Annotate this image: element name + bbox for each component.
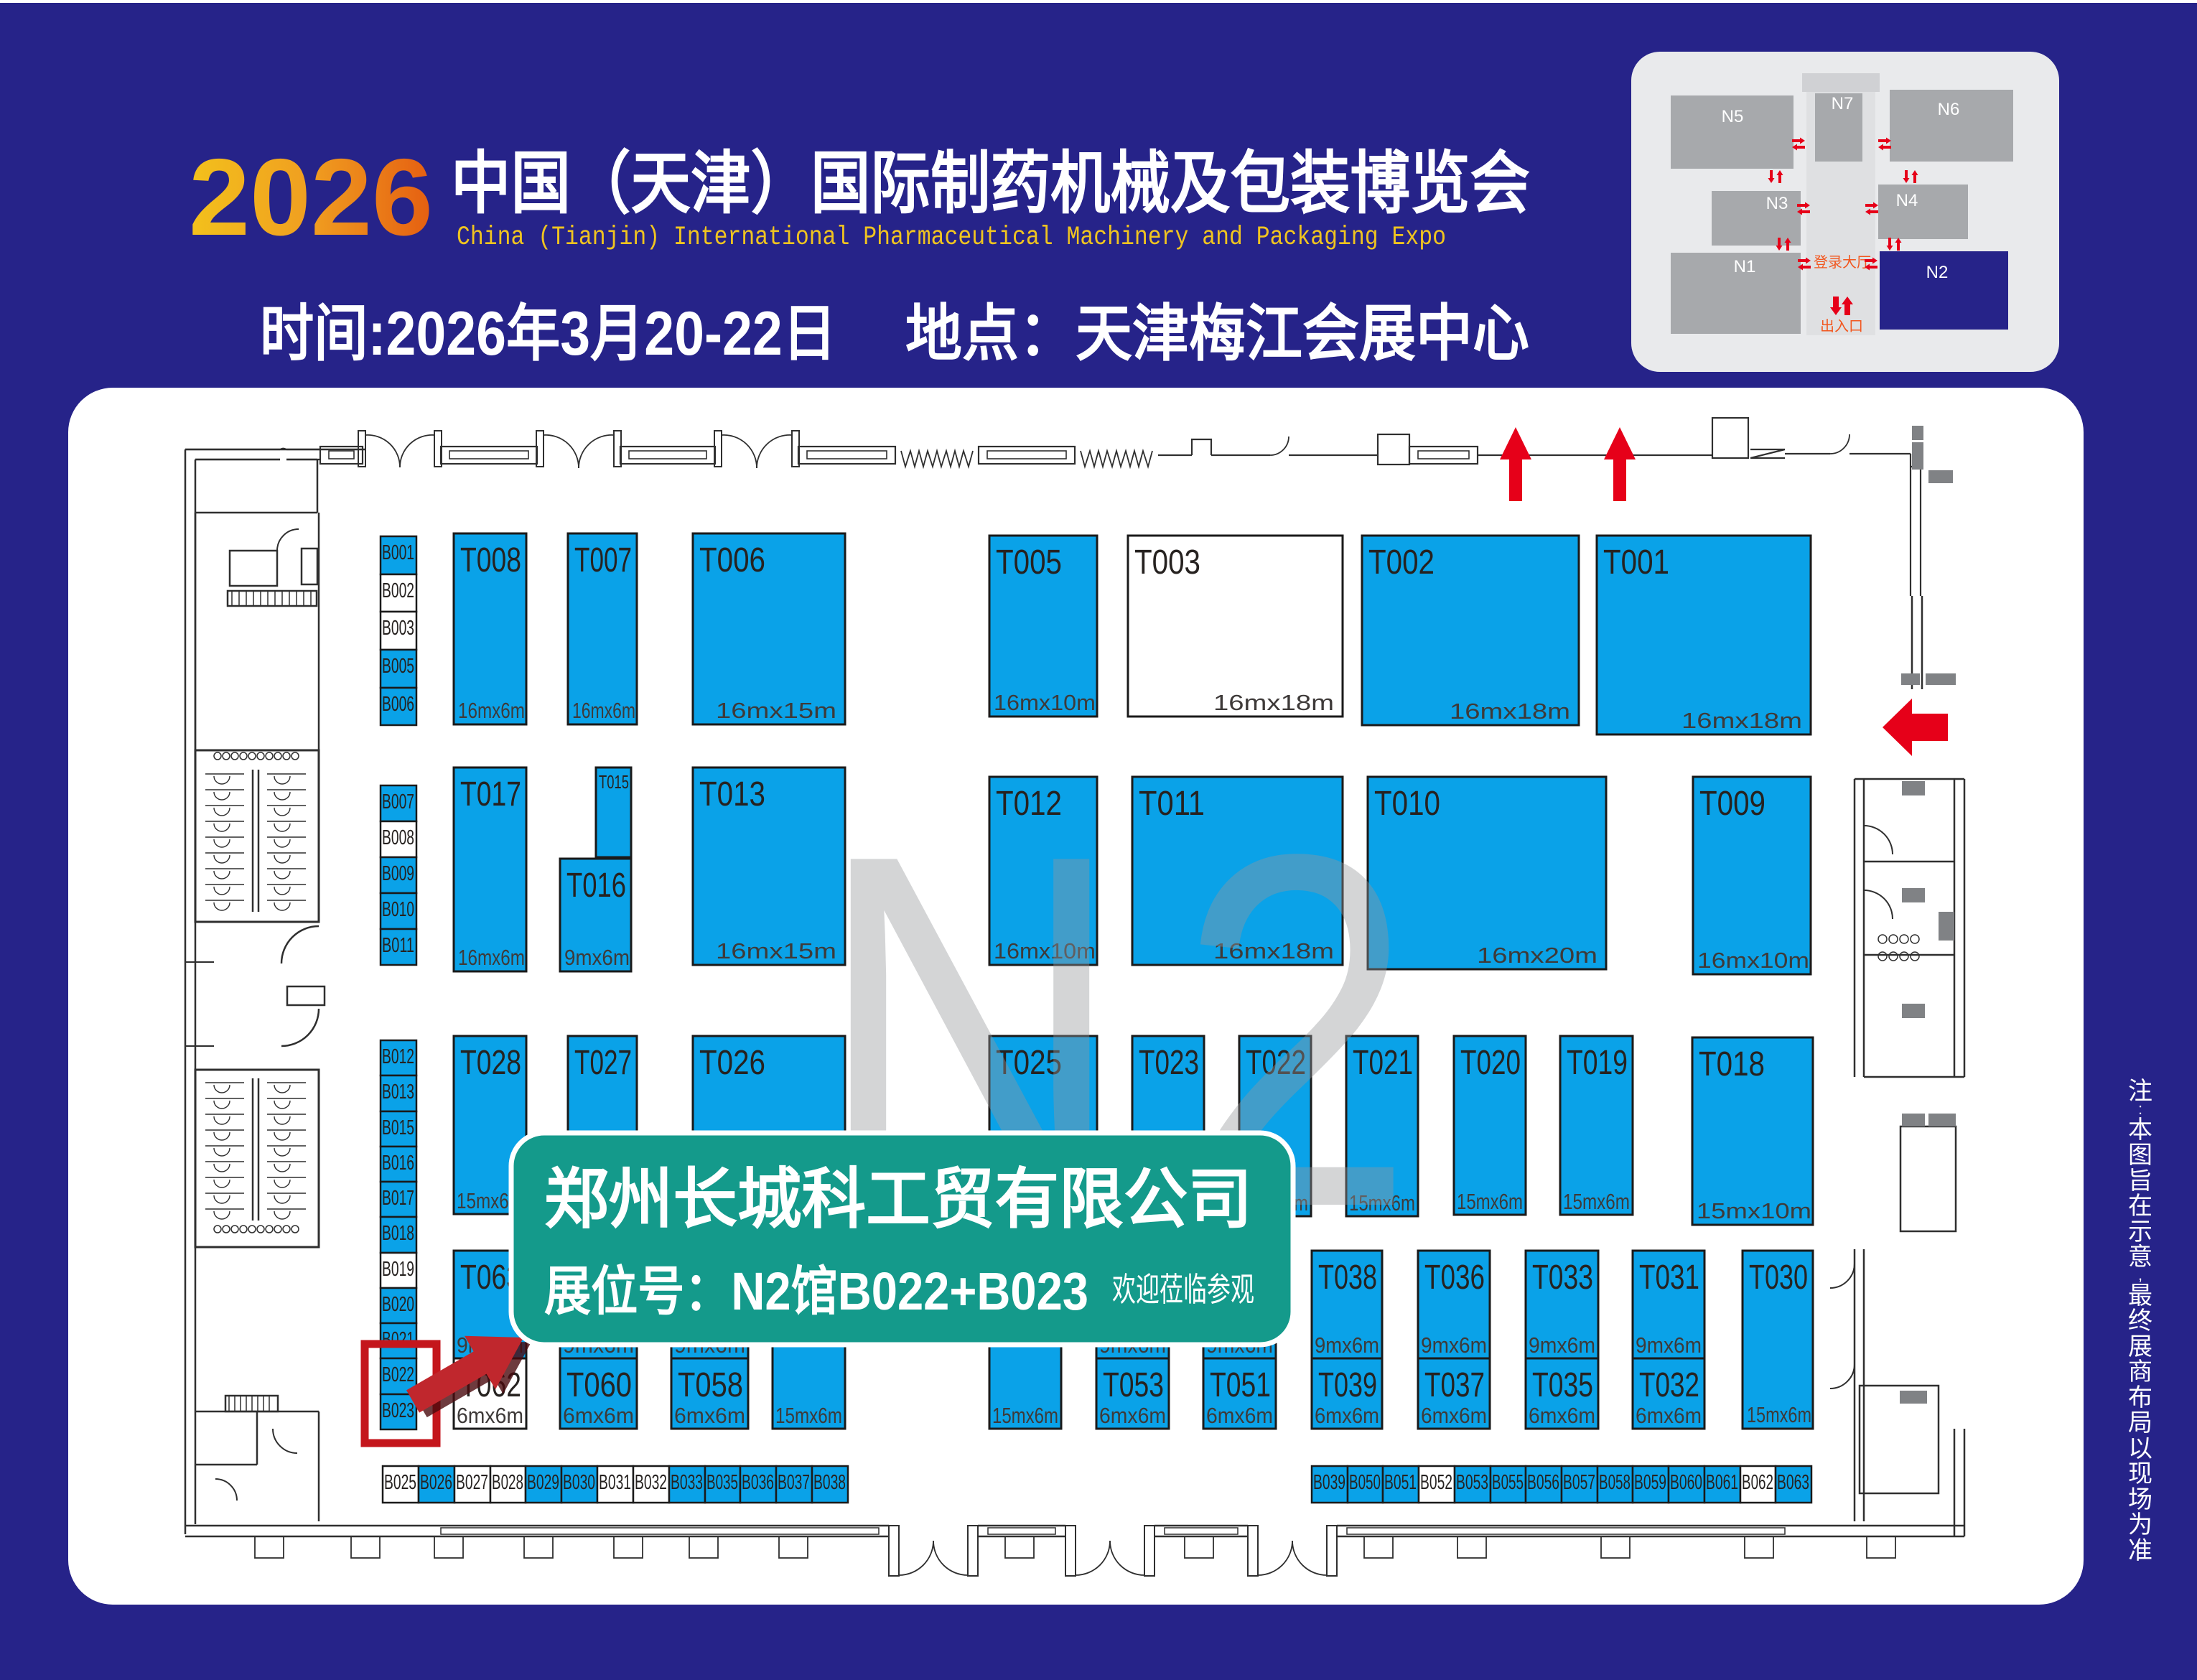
- svg-text:B061: B061: [1706, 1471, 1738, 1494]
- svg-text:N5: N5: [1722, 107, 1744, 126]
- svg-text:9mx6m: 9mx6m: [1315, 1333, 1379, 1358]
- svg-text:T017: T017: [460, 775, 521, 813]
- svg-text:China (Tianjin) International: China (Tianjin) International Pharmaceut…: [457, 223, 1446, 253]
- svg-text:时间:2026年3月20-22日: 时间:2026年3月20-22日: [260, 299, 836, 368]
- svg-text:T053: T053: [1103, 1366, 1164, 1404]
- svg-text:6mx6m: 6mx6m: [674, 1403, 745, 1428]
- svg-text:本: 本: [2128, 1116, 2152, 1144]
- svg-text:T027: T027: [574, 1044, 632, 1082]
- svg-text:B031: B031: [599, 1471, 631, 1494]
- svg-text:16mx18m: 16mx18m: [1681, 708, 1802, 733]
- svg-text:B023: B023: [382, 1399, 414, 1422]
- svg-text:B035: B035: [706, 1471, 738, 1494]
- svg-text:T039: T039: [1318, 1366, 1377, 1404]
- svg-text:登录大厅: 登录大厅: [1814, 254, 1871, 271]
- svg-text:B030: B030: [563, 1471, 595, 1494]
- svg-text:B033: B033: [671, 1471, 703, 1494]
- svg-text:图: 图: [2128, 1142, 2152, 1169]
- svg-text:9mx6m: 9mx6m: [1529, 1333, 1595, 1358]
- svg-text:15mx6m: 15mx6m: [992, 1403, 1058, 1428]
- svg-text:在: 在: [2128, 1193, 2152, 1220]
- svg-text:6mx6m: 6mx6m: [1636, 1403, 1702, 1428]
- svg-text:B008: B008: [382, 826, 414, 849]
- svg-text:B053: B053: [1456, 1471, 1488, 1494]
- svg-text:N7: N7: [1832, 94, 1854, 113]
- svg-text:T051: T051: [1210, 1366, 1271, 1404]
- svg-text:旨: 旨: [2128, 1167, 2152, 1195]
- svg-text:B052: B052: [1420, 1471, 1452, 1494]
- svg-text:9mx6m: 9mx6m: [564, 945, 630, 970]
- svg-text:T006: T006: [699, 541, 765, 579]
- svg-text:B015: B015: [382, 1116, 414, 1139]
- svg-text:6mx6m: 6mx6m: [563, 1403, 634, 1428]
- svg-text:15mx6m: 15mx6m: [775, 1403, 842, 1428]
- svg-text:B058: B058: [1599, 1471, 1631, 1494]
- svg-text:以: 以: [2128, 1435, 2152, 1462]
- svg-text:T035: T035: [1532, 1366, 1593, 1404]
- svg-text:T032: T032: [1639, 1366, 1699, 1404]
- svg-text:15mx10m: 15mx10m: [1697, 1198, 1811, 1223]
- svg-text:中国（天津）国际制药机械及包装博览会: 中国（天津）国际制药机械及包装博览会: [451, 146, 1530, 222]
- svg-text:B013: B013: [382, 1081, 414, 1103]
- svg-text:6mx6m: 6mx6m: [1099, 1403, 1166, 1428]
- svg-text:B059: B059: [1634, 1471, 1666, 1494]
- svg-text:T013: T013: [699, 775, 765, 813]
- svg-text:T015: T015: [599, 771, 629, 793]
- svg-text:B037: B037: [778, 1471, 810, 1494]
- svg-text:,: ,: [2138, 1266, 2142, 1284]
- svg-text:B007: B007: [382, 790, 414, 813]
- svg-text:2026: 2026: [189, 136, 433, 258]
- svg-text:T060: T060: [566, 1366, 632, 1404]
- svg-text:15mx6m: 15mx6m: [1563, 1189, 1630, 1214]
- svg-text:B050: B050: [1349, 1471, 1381, 1494]
- svg-text:展位号：N2馆B022+B023: 展位号：N2馆B022+B023: [544, 1261, 1088, 1321]
- svg-text:B017: B017: [382, 1187, 414, 1210]
- svg-text:9mx6m: 9mx6m: [1421, 1333, 1487, 1358]
- svg-text:6mx6m: 6mx6m: [1315, 1403, 1379, 1428]
- svg-text:6mx6m: 6mx6m: [1529, 1403, 1595, 1428]
- svg-text::: :: [2138, 1100, 2142, 1118]
- svg-text:N6: N6: [1938, 100, 1960, 119]
- svg-text:16mx15m: 16mx15m: [716, 698, 836, 723]
- svg-text:B060: B060: [1670, 1471, 1702, 1494]
- svg-text:B005: B005: [382, 655, 414, 678]
- svg-text:B010: B010: [382, 898, 414, 921]
- svg-text:16mx6m: 16mx6m: [572, 698, 635, 723]
- svg-text:B022: B022: [382, 1363, 414, 1386]
- svg-text:B063: B063: [1777, 1471, 1809, 1494]
- svg-text:场: 场: [2128, 1486, 2152, 1513]
- svg-text:B055: B055: [1492, 1471, 1524, 1494]
- svg-text:商: 商: [2128, 1358, 2152, 1386]
- svg-text:最: 最: [2128, 1282, 2152, 1310]
- svg-text:16mx18m: 16mx18m: [1450, 699, 1570, 724]
- svg-text:T033: T033: [1532, 1259, 1593, 1297]
- svg-text:T002: T002: [1368, 543, 1435, 582]
- svg-text:地点：天津梅江会展中心: 地点：天津梅江会展中心: [905, 299, 1529, 368]
- svg-text:B011: B011: [382, 934, 414, 957]
- svg-text:欢迎莅临参观: 欢迎莅临参观: [1112, 1271, 1254, 1308]
- svg-text:T058: T058: [678, 1366, 743, 1404]
- svg-text:16mx20m: 16mx20m: [1477, 943, 1597, 968]
- svg-text:B025: B025: [384, 1471, 416, 1494]
- svg-text:B026: B026: [420, 1471, 452, 1494]
- svg-text:B062: B062: [1742, 1471, 1773, 1494]
- svg-text:B056: B056: [1527, 1471, 1559, 1494]
- svg-text:16mx18m: 16mx18m: [1213, 690, 1334, 715]
- svg-text:16mx10m: 16mx10m: [994, 690, 1096, 715]
- svg-text:出入口: 出入口: [1820, 318, 1863, 335]
- svg-text:16mx10m: 16mx10m: [1697, 948, 1809, 973]
- svg-text:6mx6m: 6mx6m: [1206, 1403, 1273, 1428]
- svg-text:6mx6m: 6mx6m: [457, 1403, 523, 1428]
- svg-text:局: 局: [2128, 1409, 2152, 1437]
- svg-text:示: 示: [2128, 1218, 2152, 1246]
- svg-text:9mx6m: 9mx6m: [1636, 1333, 1702, 1358]
- svg-text:T030: T030: [1749, 1259, 1808, 1297]
- svg-text:B006: B006: [382, 693, 414, 716]
- svg-text:T008: T008: [460, 541, 521, 579]
- svg-text:15mx6m: 15mx6m: [1747, 1402, 1811, 1427]
- svg-text:16mx6m: 16mx6m: [458, 698, 525, 723]
- svg-text:终: 终: [2128, 1307, 2152, 1335]
- svg-text:T037: T037: [1424, 1366, 1485, 1404]
- svg-text:B002: B002: [382, 579, 414, 602]
- svg-text:T016: T016: [566, 867, 626, 905]
- svg-text:B018: B018: [382, 1222, 414, 1245]
- svg-text:B012: B012: [382, 1045, 414, 1068]
- svg-text:N2: N2: [1926, 263, 1949, 282]
- svg-text:6mx6m: 6mx6m: [1421, 1403, 1487, 1428]
- svg-text:16mx6m: 16mx6m: [458, 945, 525, 970]
- svg-text:B028: B028: [492, 1471, 523, 1494]
- svg-text:B032: B032: [635, 1471, 667, 1494]
- svg-text:N3: N3: [1766, 194, 1788, 213]
- svg-text:B019: B019: [382, 1258, 414, 1281]
- svg-text:B038: B038: [813, 1471, 846, 1494]
- svg-text:T028: T028: [460, 1044, 521, 1082]
- svg-text:T031: T031: [1639, 1259, 1699, 1297]
- svg-text:T003: T003: [1134, 543, 1200, 582]
- svg-text:准: 准: [2128, 1537, 2152, 1564]
- svg-text:现: 现: [2128, 1460, 2152, 1488]
- svg-text:B020: B020: [382, 1293, 414, 1316]
- svg-text:布: 布: [2128, 1384, 2152, 1411]
- svg-text:郑州长城科工贸有限公司: 郑州长城科工贸有限公司: [544, 1163, 1252, 1236]
- svg-text:B016: B016: [382, 1152, 414, 1175]
- svg-text:展: 展: [2128, 1333, 2152, 1361]
- svg-text:T005: T005: [996, 543, 1062, 582]
- svg-text:B051: B051: [1384, 1471, 1417, 1494]
- svg-text:T007: T007: [574, 541, 632, 579]
- svg-text:N1: N1: [1734, 257, 1756, 276]
- svg-text:T026: T026: [699, 1044, 765, 1082]
- svg-text:为: 为: [2128, 1511, 2152, 1539]
- svg-text:T018: T018: [1699, 1045, 1765, 1083]
- svg-text:B057: B057: [1563, 1471, 1595, 1494]
- svg-text:B003: B003: [382, 617, 414, 640]
- svg-text:B027: B027: [456, 1471, 488, 1494]
- svg-text:B036: B036: [742, 1471, 774, 1494]
- svg-text:B029: B029: [527, 1471, 559, 1494]
- svg-text:T020: T020: [1460, 1044, 1521, 1082]
- svg-text:B001: B001: [382, 541, 414, 564]
- svg-text:N4: N4: [1896, 191, 1918, 210]
- svg-text:T019: T019: [1567, 1044, 1628, 1082]
- svg-text:T009: T009: [1699, 785, 1765, 823]
- svg-text:B009: B009: [382, 862, 414, 885]
- svg-text:B039: B039: [1313, 1471, 1345, 1494]
- svg-text:T001: T001: [1603, 543, 1669, 582]
